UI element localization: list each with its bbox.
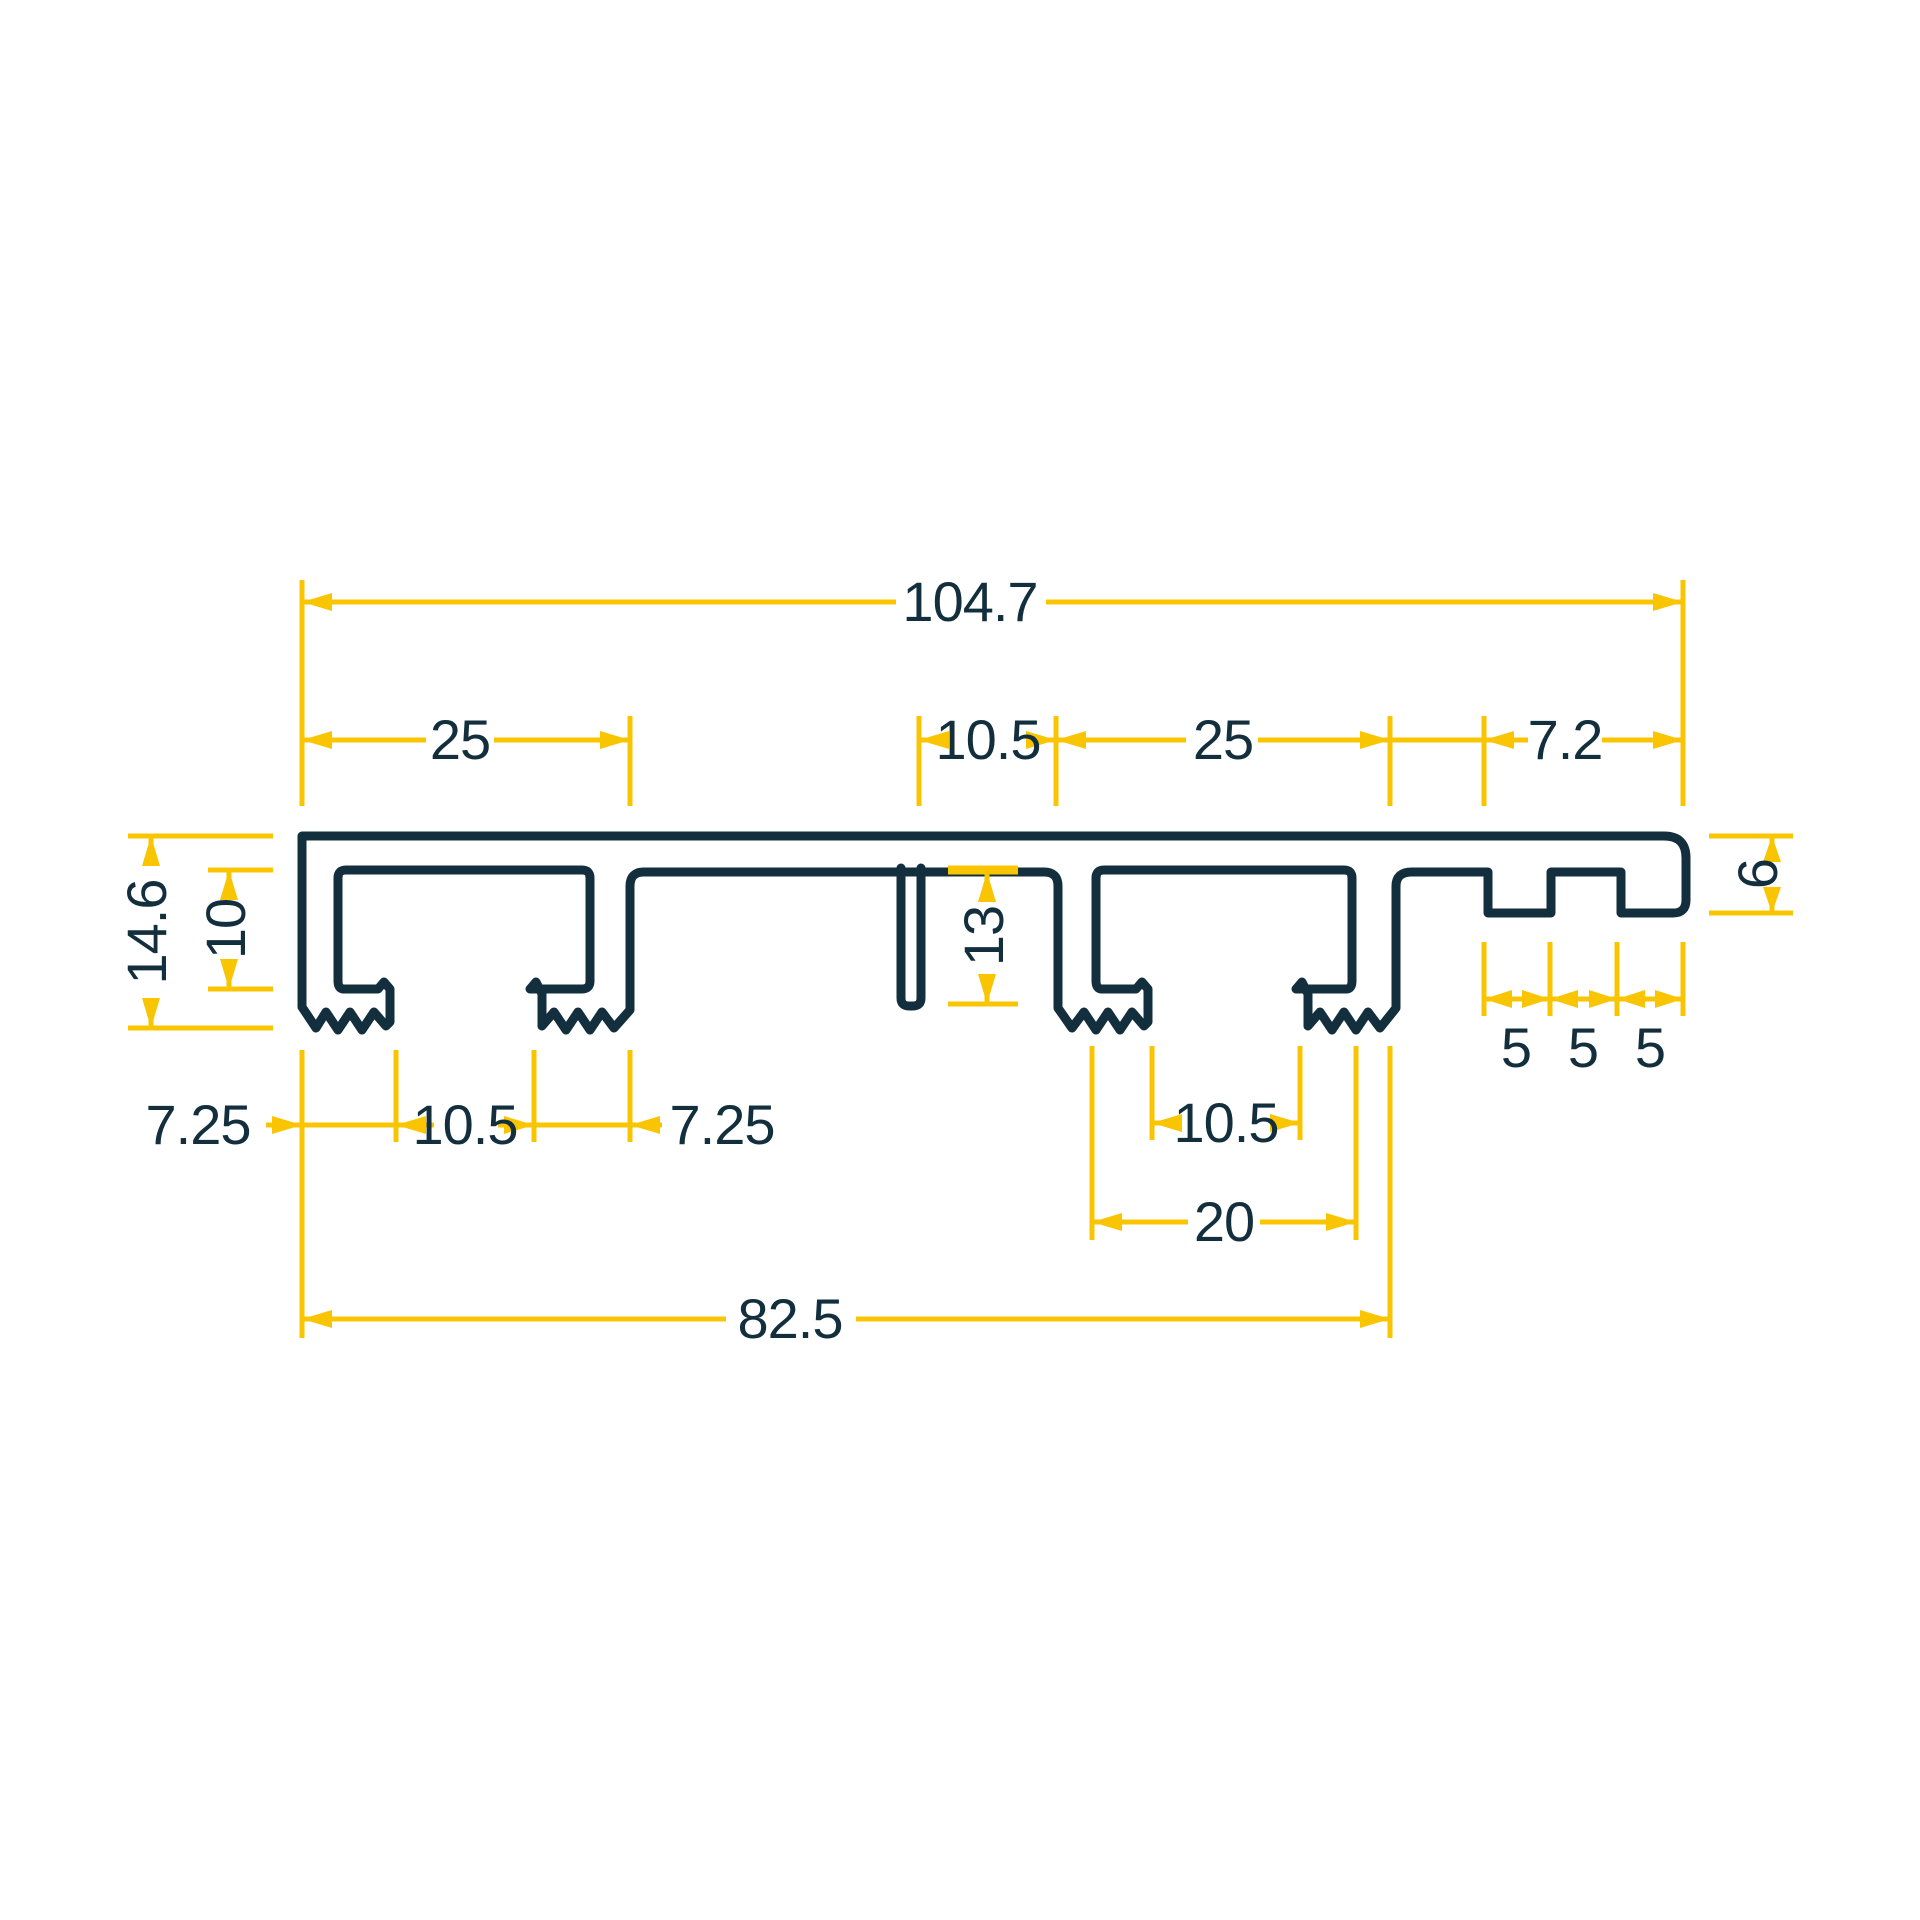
arrowhead [220,959,238,989]
dim-label-right-opening: 10.5 [1174,1091,1279,1154]
dim-label-step-1: 5 [1501,1016,1531,1079]
dim-label-left-channel-width: 25 [430,708,490,771]
arrowhead [220,870,238,900]
arrowhead [978,974,996,1004]
arrowhead [1763,836,1781,862]
dim-label-base-width: 82.5 [738,1287,843,1350]
dim-left-channel-width: 25 [302,708,630,806]
dim-label-step-3: 5 [1635,1016,1665,1079]
drawing-canvas: 104.7 25 10.5 25 7.2 [0,0,1920,1920]
dim-label-right-end-width: 7.2 [1528,708,1603,771]
arrowhead [302,731,332,749]
dim-center-web-width: 10.5 [919,708,1056,806]
dim-label-overall-height: 14.6 [115,880,178,985]
technical-drawing: 104.7 25 10.5 25 7.2 [0,0,1920,1920]
dim-label-left-opening: 10.5 [413,1093,518,1156]
arrowhead [630,1116,660,1134]
dim-right-opening: 10.5 [1152,1046,1300,1154]
arrowhead [272,1116,302,1134]
dim-right-end-thickness: 6 [1709,836,1793,913]
arrowhead [1655,990,1683,1008]
arrowhead [1589,990,1617,1008]
arrowhead [600,731,630,749]
dim-label-left-foot-left: 7.25 [146,1093,251,1156]
arrowhead [1484,990,1512,1008]
arrowhead [1360,1310,1390,1328]
arrowhead [1653,731,1683,749]
dim-channel-depth: 10 [194,870,273,989]
arrowhead [1617,990,1645,1008]
arrowhead [1326,1213,1356,1231]
dim-label-left-foot-right: 7.25 [670,1093,775,1156]
arrowhead [1522,990,1550,1008]
arrowhead [142,998,160,1028]
dim-label-right-channel-inner-width: 20 [1194,1190,1254,1253]
screw-slot-outline [901,868,921,1006]
arrowhead [1360,731,1390,749]
dim-right-channel-width: 25 [1056,708,1390,806]
dim-label-right-channel-width: 25 [1193,708,1253,771]
arrowhead [1484,731,1514,749]
dim-label-overall-width: 104.7 [902,570,1037,633]
arrowhead [1763,887,1781,913]
arrowhead [302,1310,332,1328]
dim-label-right-end-thickness: 6 [1726,859,1789,889]
arrowhead [302,593,332,611]
dim-left-foot-chain: 7.25 10.5 7.25 [146,1050,775,1338]
dim-label-step-2: 5 [1568,1016,1598,1079]
arrowhead [1092,1213,1122,1231]
dim-label-channel-depth: 10 [194,899,257,959]
dim-right-steps: 5 5 5 [1484,942,1683,1079]
arrowhead [1056,731,1086,749]
dim-label-center-web-width: 10.5 [936,708,1041,771]
arrowhead [1550,990,1578,1008]
arrowhead [1653,593,1683,611]
dim-label-slot-depth: 13 [952,906,1015,966]
dim-right-end-width: 7.2 [1390,708,1683,806]
dim-slot-depth: 13 [948,870,1018,1004]
arrowhead [142,836,160,866]
